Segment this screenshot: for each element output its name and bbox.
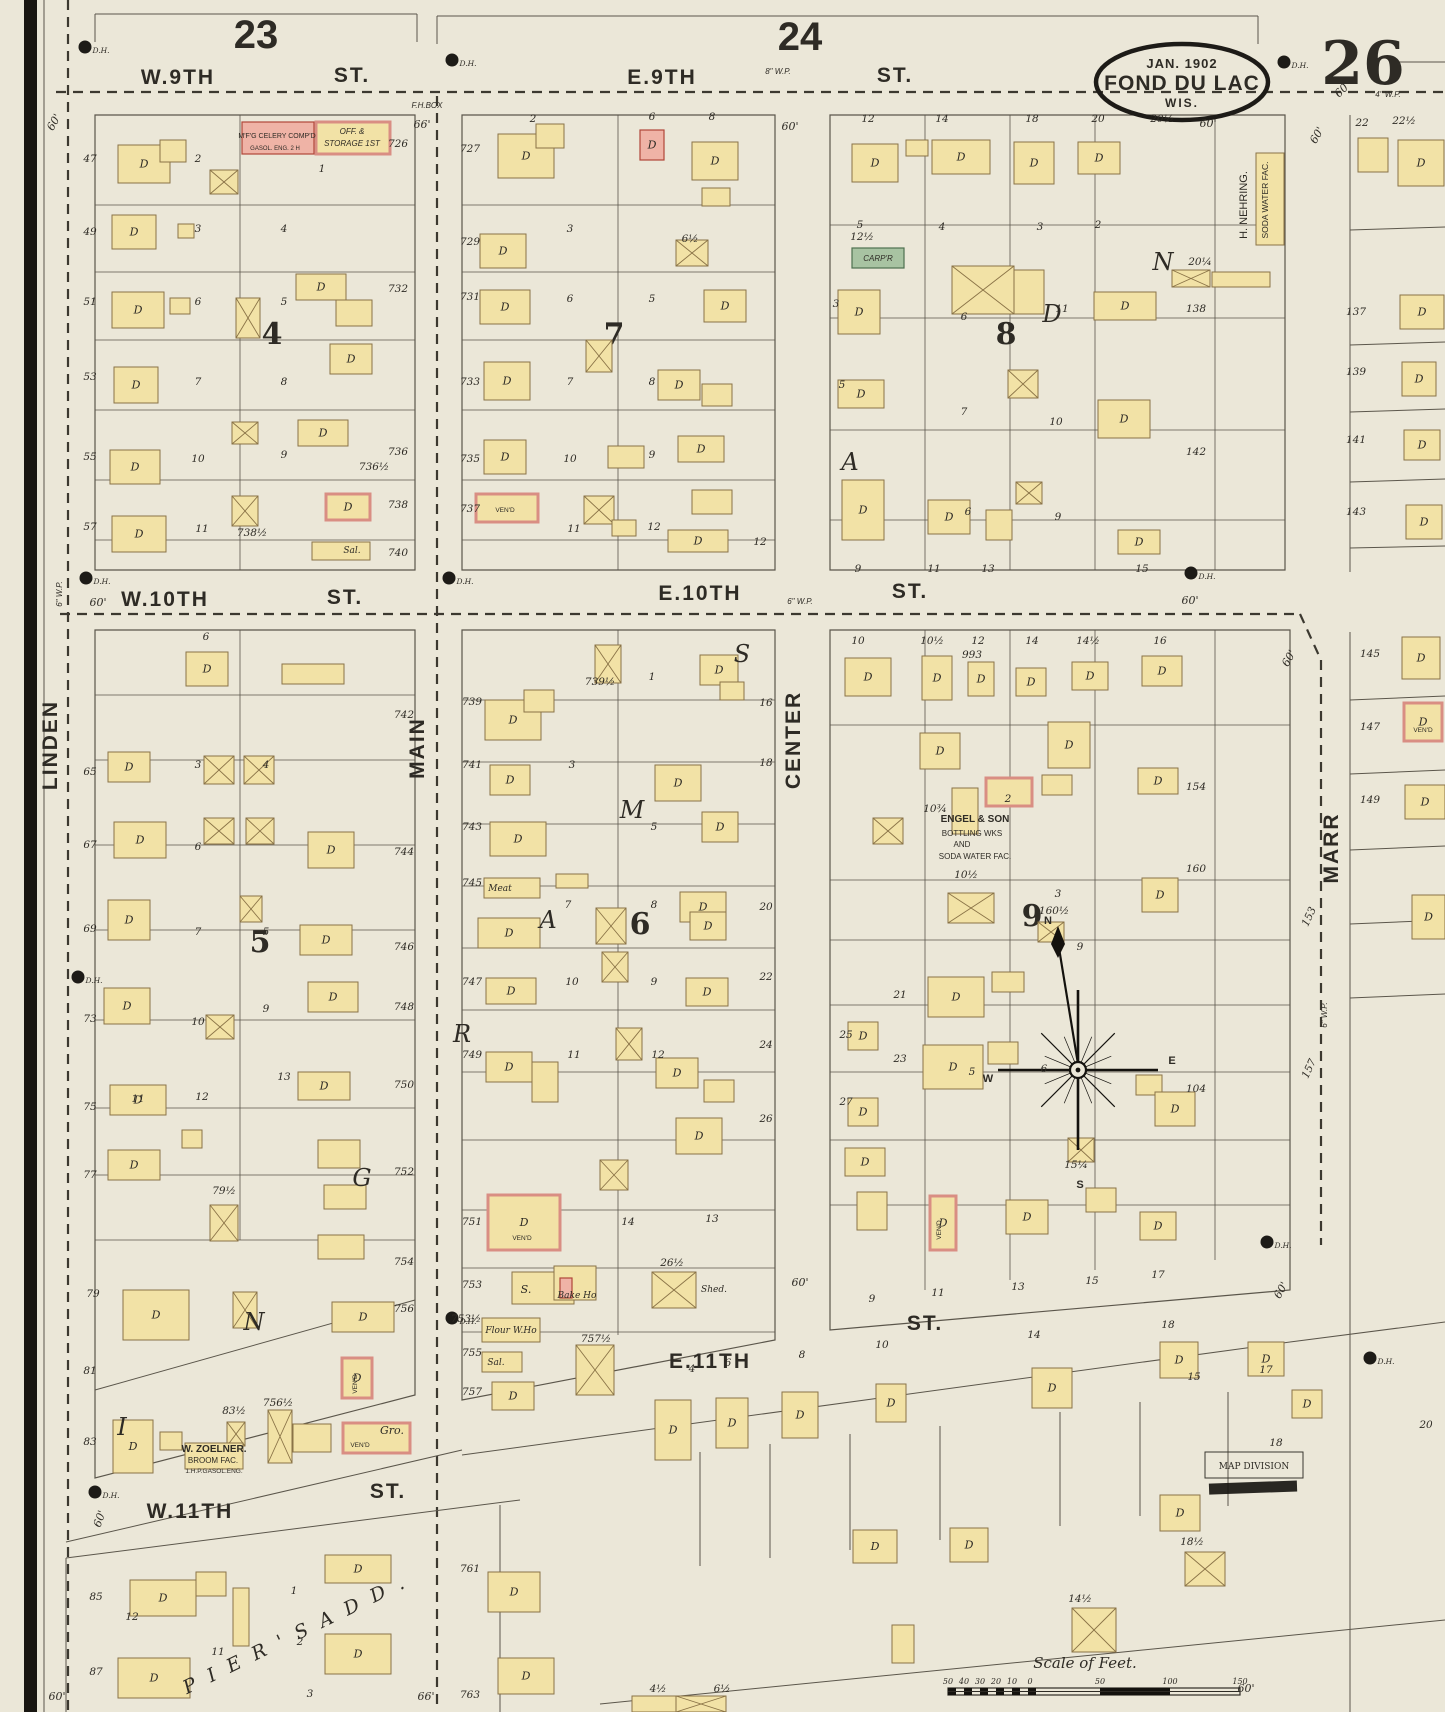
lot-number: 741: [462, 759, 482, 771]
building-label: D: [694, 1130, 704, 1143]
building-label: D: [513, 833, 523, 846]
lot-number: 10: [191, 453, 205, 465]
lot-number: 9: [869, 1293, 876, 1305]
building: [536, 124, 564, 148]
lot-number: 6½: [714, 1683, 731, 1695]
building: [160, 140, 186, 162]
building-label: D: [696, 443, 706, 456]
building-label: D: [1414, 373, 1424, 386]
building-label: D: [673, 777, 683, 790]
facility-label: 6" W.P.: [55, 581, 64, 607]
building-label: D: [935, 745, 945, 758]
lot-number: 744: [394, 846, 414, 858]
lot-number: 20: [1090, 113, 1105, 125]
building: [178, 224, 194, 238]
building-label: D: [715, 821, 725, 834]
lot-number: 13: [277, 1071, 291, 1083]
building-label: D: [956, 151, 966, 164]
dh-dot: [1364, 1352, 1377, 1365]
building-label: D: [1026, 676, 1036, 689]
lot-number: 2: [296, 1636, 304, 1648]
lot-number: 147: [1360, 721, 1380, 733]
building: [532, 1062, 558, 1102]
building-label: D: [870, 157, 880, 170]
street-label: MAIN: [406, 717, 429, 779]
lot-number: 79½: [212, 1185, 236, 1197]
building-label: D: [932, 672, 942, 685]
building-label: D: [326, 844, 336, 857]
measure-label: 66': [417, 1690, 434, 1703]
building-label: D: [703, 920, 713, 933]
building-label: D: [1417, 306, 1427, 319]
lot-number: 9: [1077, 941, 1084, 953]
building-label: D: [1302, 1398, 1312, 1411]
building-label: D: [714, 664, 724, 677]
building-label: D: [964, 1539, 974, 1552]
lot-number: 750: [394, 1079, 414, 1091]
building: [986, 510, 1012, 540]
lot-number: 2: [1004, 793, 1012, 805]
building-label: D: [128, 1440, 138, 1453]
scale-tick-label: 0: [1027, 1677, 1032, 1686]
building-label: D: [124, 914, 134, 927]
building: [293, 1424, 331, 1452]
addition-letter: D: [1041, 300, 1061, 328]
lot-number: 6: [649, 111, 656, 123]
lot-number: 4½: [649, 1683, 667, 1695]
building-label: D: [858, 1030, 868, 1043]
lot-number: 67: [83, 839, 97, 851]
facility-label: CARP'R: [863, 254, 893, 263]
building-label: D: [122, 1000, 132, 1013]
dh-dot: [446, 54, 459, 67]
building-label: D: [130, 461, 140, 474]
compass-direction-label: W: [983, 1073, 994, 1085]
building: [336, 300, 372, 326]
facility-label: 8" W.P.: [765, 67, 791, 76]
lot-number: 23: [892, 1053, 907, 1065]
building-label: D: [1153, 775, 1163, 788]
lot-number: 8: [799, 1349, 806, 1361]
lot-number: 10: [191, 1016, 205, 1028]
lot-number: 726: [388, 138, 408, 150]
building-label: D: [702, 986, 712, 999]
building: [182, 1130, 202, 1148]
lot-number: 22: [758, 971, 773, 983]
dh-dot-label: D.H.: [1197, 572, 1215, 581]
lot-number: 12: [651, 1049, 665, 1061]
lot-number: 748: [394, 1001, 414, 1013]
building-label: D: [710, 155, 720, 168]
dh-dot-label: D.H.: [84, 976, 102, 985]
lot-number: 7: [195, 376, 202, 388]
lot-number: 2: [529, 113, 537, 125]
building: [612, 520, 636, 536]
building-label: D: [1174, 1354, 1184, 1367]
lot-number: 9: [649, 449, 656, 461]
lot-number: 83½: [222, 1405, 246, 1417]
lot-number: 746: [394, 941, 414, 953]
building-label: D: [1416, 157, 1426, 170]
lot-number: 9: [651, 976, 658, 988]
lot-number: 6: [1041, 1063, 1048, 1075]
block-number: 6: [630, 907, 651, 942]
lot-number: 4: [280, 223, 288, 235]
lot-number: 4: [688, 1363, 696, 1375]
building-label: D: [133, 304, 143, 317]
adjacent-sheet-number: 24: [778, 15, 823, 59]
lot-number: 9: [281, 449, 288, 461]
lot-number: 756: [394, 1303, 414, 1315]
scale-bar-title: Scale of Feet.: [1033, 1654, 1137, 1672]
lot-number: 10: [851, 635, 865, 647]
lot-number: 753: [462, 1279, 482, 1291]
building-label: D: [506, 985, 516, 998]
dh-dot-label: D.H.: [1290, 61, 1308, 70]
scale-tick-label: 20: [990, 1677, 1001, 1686]
lot-number: 141: [1346, 434, 1366, 446]
lot-number: 73: [83, 1013, 97, 1025]
lot-number: 732: [388, 283, 408, 295]
lot-number: 26: [758, 1113, 773, 1125]
building: [992, 972, 1024, 992]
street-label: E.11TH: [669, 1350, 751, 1373]
compass-hub-dot: [1076, 1068, 1081, 1073]
lot-number: 729: [460, 236, 480, 248]
lot-number: 13: [981, 563, 995, 575]
addition-letter: N: [1152, 248, 1175, 276]
building: [720, 682, 744, 700]
building-label: D: [505, 774, 515, 787]
lot-number: 14½: [1068, 1593, 1092, 1605]
lot-number: 57: [83, 521, 97, 533]
lot-number: 16: [1153, 635, 1167, 647]
building-label: D: [1085, 670, 1095, 683]
lot-number: 5: [857, 219, 864, 231]
lot-number: 14: [621, 1216, 634, 1228]
lot-number: 736: [388, 446, 408, 458]
building-label: D: [504, 1061, 514, 1074]
facility-label: SODA WATER FAC.: [939, 852, 1011, 861]
building-label: D: [944, 511, 954, 524]
facility-label: M'F'G CELERY COMP'D: [238, 133, 315, 140]
measure-label: 60': [791, 1276, 808, 1289]
building-label: D: [502, 375, 512, 388]
lot-number: 160: [1186, 863, 1206, 875]
lot-number: 83: [83, 1436, 97, 1448]
lot-number: 5: [969, 1066, 976, 1078]
adjacent-sheet-number: 23: [234, 13, 279, 57]
dh-dot: [79, 41, 92, 54]
addition-letter: R: [452, 1020, 471, 1048]
building-label: D: [521, 1670, 531, 1683]
facility-label: GASOL. ENG. 2 H: [250, 146, 300, 152]
lot-number: 10½: [920, 635, 944, 647]
date-oval-line1: JAN. 1902: [1146, 56, 1217, 71]
building-label: D: [1417, 439, 1427, 452]
lot-number: 743: [462, 821, 482, 833]
building-label: D: [1419, 516, 1429, 529]
street-label: ST.: [877, 64, 913, 87]
street-label: W.9TH: [141, 66, 215, 89]
street-label: ST.: [370, 1480, 406, 1503]
building: [556, 874, 588, 888]
lot-number: 11: [131, 1093, 144, 1105]
lot-number: 81: [83, 1365, 96, 1377]
facility-label: AND: [954, 840, 971, 849]
building-label: D: [131, 379, 141, 392]
addition-letter: G: [352, 1164, 371, 1192]
lot-number: 12½: [850, 231, 874, 243]
building: [196, 1572, 226, 1596]
building-label: D: [358, 1311, 368, 1324]
measure-label: 60': [1181, 594, 1198, 607]
scale-tick-label: 50: [943, 1677, 953, 1686]
lot-number: 12: [861, 113, 875, 125]
building-label: D: [202, 663, 212, 676]
lot-number: 149: [1360, 794, 1380, 806]
lot-number: 753½: [451, 1313, 481, 1325]
facility-label: S.: [521, 1283, 532, 1296]
building-label: D: [498, 245, 508, 258]
lot-number: 14½: [1076, 635, 1100, 647]
scale-tick-label: 100: [1162, 1677, 1177, 1686]
building-label: D: [353, 1648, 363, 1661]
lot-number: 24: [758, 1039, 772, 1051]
building: [704, 1080, 734, 1102]
facility-label: VEN'D: [352, 1374, 359, 1394]
dh-dot-label: D.H.: [92, 577, 110, 586]
building-label: D: [720, 300, 730, 313]
building-label: D: [158, 1592, 168, 1605]
map-viewport[interactable]: 478569DDDDDDDDDDDDDDDDDDDDDDDDDDDDDDDDDD…: [0, 0, 1445, 1712]
lot-number: 5: [651, 821, 658, 833]
lot-number: 757½: [581, 1333, 611, 1345]
scale-tick-label: 10: [1007, 1677, 1017, 1686]
building-label: D: [500, 301, 510, 314]
map-division-stamp-text: MAP DIVISION: [1219, 1462, 1290, 1472]
lot-number: 8: [649, 376, 656, 388]
building-label: D: [647, 139, 657, 152]
lot-number: 1: [291, 1585, 298, 1597]
lot-number: 17: [1151, 1269, 1165, 1281]
dh-dot-label: D.H.: [458, 59, 476, 68]
building-label: D: [856, 388, 866, 401]
lot-number: 51: [83, 296, 96, 308]
addition-letter: I: [116, 1413, 127, 1441]
lot-number: 12: [753, 536, 767, 548]
lot-number: 3: [833, 298, 840, 310]
lot-number: 3: [567, 223, 574, 235]
building: [1042, 775, 1072, 795]
building: [318, 1235, 364, 1259]
lot-number: 20: [758, 901, 773, 913]
lot-number: 27: [838, 1096, 853, 1108]
lot-number: 993: [962, 649, 982, 661]
addition-letter: N: [243, 1308, 266, 1336]
building-label: D: [328, 991, 338, 1004]
addition-letter: A: [537, 906, 556, 934]
building-label: D: [1022, 1211, 1032, 1224]
building: [1014, 270, 1044, 314]
sheet-edge-bar: [24, 0, 37, 1712]
building-label: D: [353, 1563, 363, 1576]
building-label: D: [948, 1061, 958, 1074]
lot-number: 15: [1135, 563, 1149, 575]
building-label: D: [124, 761, 134, 774]
lot-number: 47: [82, 153, 97, 165]
lot-number: 4: [938, 221, 946, 233]
facility-label: H. NEHRING.: [1238, 171, 1250, 239]
street-label: MARR: [1320, 813, 1343, 884]
lot-number: 18½: [1180, 1536, 1204, 1548]
lot-number: 65: [83, 766, 97, 778]
building-label: D: [1047, 1382, 1057, 1395]
facility-label: STORAGE 1ST: [324, 139, 381, 148]
lot-number: 731: [460, 291, 480, 303]
building: [857, 1192, 887, 1230]
measure-label: 60': [48, 1690, 65, 1703]
lot-number: 763: [460, 1689, 480, 1701]
facility-label: Bake Ho: [557, 1291, 597, 1301]
lot-number: 138: [1186, 303, 1206, 315]
dh-dot: [72, 971, 85, 984]
building-label: D: [321, 934, 331, 947]
lot-number: 6½: [682, 233, 699, 245]
building-label: D: [727, 1417, 737, 1430]
lot-number: 6: [725, 1357, 732, 1369]
lot-number: 15: [1187, 1371, 1201, 1383]
lot-number: 6: [203, 631, 210, 643]
building-label: D: [976, 673, 986, 686]
addition-letter: M: [619, 796, 646, 824]
lot-number: 137: [1346, 306, 1366, 318]
lot-number: 14: [935, 113, 948, 125]
lot-number: 11: [567, 523, 580, 535]
lot-number: 745: [462, 877, 482, 889]
scale-tick-label: 40: [958, 1677, 969, 1686]
building-label: D: [668, 1424, 678, 1437]
lot-number: 6: [195, 296, 202, 308]
lot-number: 3: [569, 759, 576, 771]
facility-label: W. ZOELNER.: [182, 1444, 247, 1455]
lot-number: 1: [649, 671, 656, 683]
lot-number: 10: [875, 1339, 889, 1351]
building-label: D: [500, 451, 510, 464]
lot-number: 736½: [359, 461, 389, 473]
lot-number: 20½: [1149, 113, 1174, 125]
lot-number: 739½: [585, 676, 615, 688]
lot-number: 139: [1346, 366, 1366, 378]
street-label: ST.: [907, 1312, 943, 1335]
building: [692, 490, 732, 514]
facility-label: ENGEL & SON: [941, 814, 1010, 825]
facility-label: 6" W.P.: [787, 597, 813, 606]
dh-dot-label: D.H.: [1376, 1357, 1394, 1366]
compass-direction-label: E: [1168, 1055, 1175, 1067]
facility-label: BOTTLING WKS: [942, 829, 1002, 838]
building-label: D: [318, 427, 328, 440]
facility-label: 6" W.P.: [1320, 1002, 1329, 1028]
dh-dot: [1261, 1236, 1274, 1249]
measure-label: 60': [1199, 117, 1216, 130]
date-oval-line2: FOND DU LAC: [1104, 72, 1260, 95]
lot-number: 143: [1346, 506, 1366, 518]
facility-label: Flour W.Ho: [484, 1326, 537, 1336]
building-label: D: [346, 353, 356, 366]
facility-label: Sal.: [487, 1358, 504, 1368]
building-label: D: [519, 1216, 529, 1229]
lot-number: 53: [83, 371, 97, 383]
building-label: D: [1170, 1103, 1180, 1116]
lot-number: 10: [565, 976, 579, 988]
lot-number: 10: [1049, 416, 1063, 428]
lot-number: 15: [1085, 1275, 1099, 1287]
addition-letter: S: [734, 640, 750, 668]
lot-number: 75: [83, 1101, 97, 1113]
lot-number: 11: [931, 1287, 944, 1299]
building: [1086, 1188, 1116, 1212]
lot-number: 733: [460, 376, 480, 388]
building-label: D: [795, 1409, 805, 1422]
building-label: D: [1120, 300, 1130, 313]
building-label: D: [1155, 889, 1165, 902]
lot-number: 8: [281, 376, 288, 388]
lot-number: 751: [462, 1216, 482, 1228]
building-label: D: [135, 834, 145, 847]
building-label: D: [886, 1397, 896, 1410]
lot-number: 154: [1186, 781, 1206, 793]
building-label: D: [1064, 739, 1074, 752]
building-label: D: [319, 1080, 329, 1093]
building-label: D: [1416, 652, 1426, 665]
building-label: D: [858, 504, 868, 517]
building-label: D: [1157, 665, 1167, 678]
facility-label: 1.H.P.GASOL.ENG.: [185, 1468, 243, 1475]
lot-number: 17: [1259, 1364, 1273, 1376]
building: [170, 298, 190, 314]
lot-number: 7: [195, 926, 202, 938]
lot-number: 18: [1025, 113, 1039, 125]
lot-number: 740: [388, 547, 408, 559]
lot-number: 738½: [237, 527, 267, 539]
lot-number: 6: [567, 293, 574, 305]
dh-dot-label: D.H.: [91, 46, 109, 55]
lot-number: 104: [1186, 1083, 1206, 1095]
building-label: D: [316, 281, 326, 294]
facility-label: SODA WATER FAC.: [1260, 162, 1270, 239]
lot-number: 9: [855, 563, 862, 575]
lot-number: 6: [961, 311, 968, 323]
lot-number: 749: [462, 1049, 482, 1061]
building: [608, 446, 644, 468]
facility-label: VEN'D: [350, 1442, 370, 1449]
building-label: D: [1175, 1507, 1185, 1520]
lot-number: 22: [1354, 117, 1369, 129]
lot-number: 16: [759, 697, 773, 709]
dh-dot-label: D.H.: [1273, 1241, 1291, 1250]
building-label: D: [854, 306, 864, 319]
building: [952, 788, 978, 834]
block-number: 8: [996, 317, 1017, 352]
dh-dot: [1278, 56, 1291, 69]
building: [988, 1042, 1018, 1064]
facility-label: Shed.: [701, 1285, 727, 1295]
street-label: ST.: [327, 586, 363, 609]
building: [312, 542, 370, 560]
building-label: D: [1029, 157, 1039, 170]
lot-number: 49: [82, 226, 97, 238]
